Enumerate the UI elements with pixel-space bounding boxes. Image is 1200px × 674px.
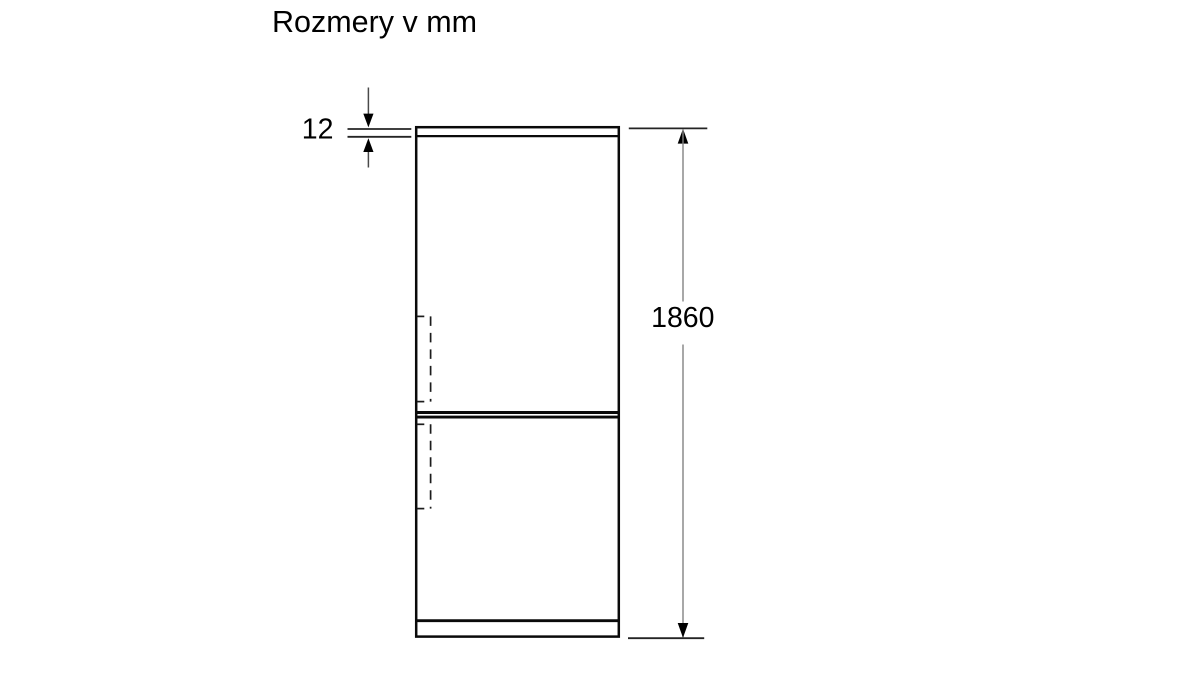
fridge-outline bbox=[416, 127, 619, 636]
arrow-down-icon bbox=[363, 114, 373, 128]
dimension-value-overall-height: 1860 bbox=[651, 302, 714, 334]
dimension-diagram: Rozmery v mm bbox=[0, 0, 1200, 674]
dimension-top-panel-thickness: 12 bbox=[302, 88, 412, 168]
arrow-up-icon bbox=[363, 138, 373, 152]
page-title: Rozmery v mm bbox=[272, 5, 477, 39]
diagram-page: Rozmery v mm bbox=[0, 0, 1200, 674]
dimension-overall-height: 1860 bbox=[628, 128, 715, 638]
arrow-down-icon bbox=[678, 623, 689, 638]
lower-door-handle-recess bbox=[417, 424, 431, 508]
fridge-front-view bbox=[415, 127, 620, 636]
upper-door-handle-recess bbox=[417, 316, 431, 401]
dimension-value-top-thickness: 12 bbox=[302, 114, 334, 146]
